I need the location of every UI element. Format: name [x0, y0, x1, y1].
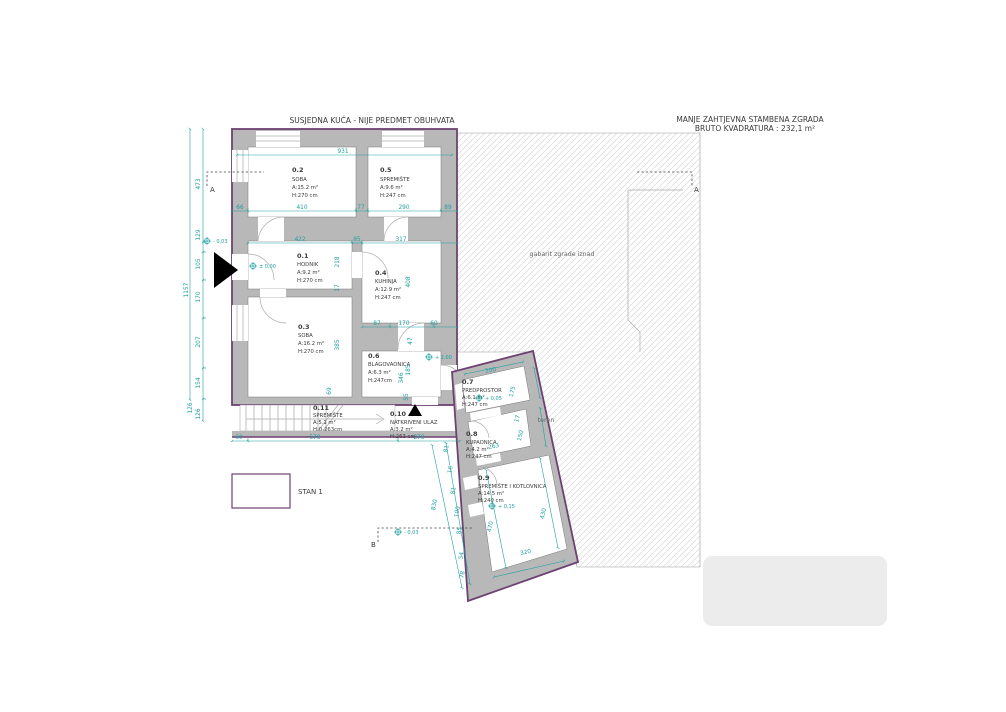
svg-text:SPREMIŠTE I KOTLOVNICA: SPREMIŠTE I KOTLOVNICA — [478, 483, 547, 490]
svg-text:317: 317 — [395, 237, 406, 243]
svg-text:A:9.6 m²: A:9.6 m² — [380, 184, 403, 191]
svg-text:KUHINJA: KUHINJA — [375, 279, 397, 285]
svg-text:290: 290 — [398, 205, 409, 211]
svg-text:408: 408 — [406, 276, 412, 287]
svg-text:H:247cm: H:247cm — [368, 378, 392, 384]
section-a-right-label: A — [694, 186, 699, 194]
svg-text:105: 105 — [196, 258, 202, 269]
svg-text:A:9.2 m²: A:9.2 m² — [297, 269, 320, 276]
svg-text:0.5: 0.5 — [380, 166, 392, 174]
dim-931: 931 — [337, 149, 348, 155]
svg-text:0.4: 0.4 — [375, 269, 387, 277]
room-04-interior — [362, 241, 441, 323]
svg-text:346: 346 — [399, 372, 405, 383]
svg-text:H:247 cm: H:247 cm — [380, 193, 406, 199]
svg-text:A:4.2 m²: A:4.2 m² — [466, 446, 489, 453]
svg-text:185: 185 — [406, 364, 412, 375]
svg-text:0.7: 0.7 — [462, 378, 474, 386]
svg-text:1157: 1157 — [184, 282, 190, 297]
svg-text:0.1: 0.1 — [297, 252, 309, 260]
svg-text:+ 0,15: + 0,15 — [498, 504, 515, 510]
svg-text:81: 81 — [450, 486, 457, 495]
section-b-label: B — [371, 541, 376, 549]
svg-text:60: 60 — [235, 435, 243, 441]
svg-text:85: 85 — [353, 237, 361, 243]
right-note-line1: MANJE ZAHTJEVNA STAMBENA ZGRADA — [676, 115, 824, 124]
svg-text:A:6.3 m²: A:6.3 m² — [368, 369, 391, 376]
svg-text:17: 17 — [335, 284, 341, 292]
svg-text:126: 126 — [196, 408, 202, 419]
svg-text:129: 129 — [196, 229, 202, 240]
top-note: SUSJEDNA KUĆA - NIJE PREDMET OBUHVATA — [290, 116, 456, 125]
svg-text:0.6: 0.6 — [368, 352, 380, 360]
svg-text:66: 66 — [236, 205, 244, 211]
right-note-line2: BRUTO KVADRATURA : 232,1 m² — [695, 124, 815, 133]
svg-text:89: 89 — [444, 205, 452, 211]
svg-text:H:270 cm: H:270 cm — [297, 278, 323, 284]
svg-text:± 0,00: ± 0,00 — [259, 264, 276, 270]
svg-text:0.3: 0.3 — [298, 323, 310, 331]
level-marker-icon — [394, 528, 402, 536]
svg-text:SOBA: SOBA — [298, 333, 313, 339]
svg-text:H:0-263cm: H:0-263cm — [313, 427, 342, 433]
floor-plan-drawing: A A B SUSJEDNA KUĆA - NIJE PREDMET OBUHV… — [0, 0, 1006, 712]
svg-text:126: 126 — [188, 402, 194, 413]
section-a-left-label: A — [210, 186, 215, 194]
svg-text:SOBA: SOBA — [292, 177, 307, 183]
svg-text:77: 77 — [357, 205, 365, 211]
redacted-stamp-area — [703, 556, 887, 626]
svg-text:170: 170 — [398, 321, 409, 327]
svg-text:A:12.9 m²: A:12.9 m² — [375, 286, 401, 293]
floor-plan-page: A A B SUSJEDNA KUĆA - NIJE PREDMET OBUHV… — [0, 0, 1006, 712]
svg-text:A:15.2 m²: A:15.2 m² — [292, 184, 318, 191]
gabarit-label: gabarit zgrade iznad — [529, 251, 594, 258]
svg-text:0.2: 0.2 — [292, 166, 304, 174]
svg-text:170: 170 — [196, 291, 202, 302]
svg-text:410: 410 — [296, 205, 307, 211]
svg-text:578: 578 — [309, 435, 320, 441]
legend-swatch — [232, 474, 290, 508]
svg-text:0.10: 0.10 — [390, 410, 407, 418]
svg-text:47: 47 — [408, 337, 414, 345]
svg-text:55: 55 — [404, 393, 410, 401]
svg-text:- 0,03: - 0,03 — [404, 530, 419, 536]
svg-text:NATKRIVENI ULAZ: NATKRIVENI ULAZ — [390, 420, 438, 426]
svg-text:0.11: 0.11 — [313, 404, 330, 412]
svg-text:SPREMIŠTE: SPREMIŠTE — [380, 176, 410, 183]
svg-text:100: 100 — [454, 506, 462, 518]
svg-text:422: 422 — [294, 237, 305, 243]
svg-text:A:16.2 m²: A:16.2 m² — [298, 340, 324, 347]
svg-text:385: 385 — [335, 339, 341, 350]
svg-text:A:3.2 m²: A:3.2 m² — [390, 426, 413, 433]
svg-text:+ 2,00: + 2,00 — [435, 355, 452, 361]
level-marker-icon — [203, 237, 211, 245]
svg-text:154: 154 — [196, 377, 202, 388]
svg-text:H:270 cm: H:270 cm — [292, 193, 318, 199]
svg-text:H:247 cm: H:247 cm — [466, 454, 492, 460]
svg-text:81: 81 — [443, 444, 450, 453]
svg-text:0.8: 0.8 — [466, 430, 478, 438]
svg-text:16: 16 — [447, 465, 454, 474]
legend-label: STAN 1 — [298, 488, 323, 496]
svg-text:PREDPROSTOR: PREDPROSTOR — [462, 388, 502, 394]
svg-text:69: 69 — [327, 387, 333, 395]
svg-text:H:247 cm: H:247 cm — [462, 402, 488, 408]
svg-text:278: 278 — [413, 435, 424, 441]
svg-text:H:263 cm: H:263 cm — [390, 434, 416, 440]
svg-text:BLAGOVAONICA: BLAGOVAONICA — [368, 362, 411, 368]
svg-text:- 0,03: - 0,03 — [213, 239, 228, 245]
svg-text:+ 0,05: + 0,05 — [485, 396, 502, 402]
svg-text:830: 830 — [431, 499, 439, 511]
svg-text:HODNIK: HODNIK — [297, 262, 319, 268]
svg-text:H:270 cm: H:270 cm — [298, 349, 324, 355]
svg-text:473: 473 — [196, 178, 202, 189]
legend: STAN 1 — [232, 474, 323, 508]
svg-text:A:5.1 m²: A:5.1 m² — [313, 419, 336, 426]
svg-text:60: 60 — [430, 321, 438, 327]
svg-text:SPREMIŠTE: SPREMIŠTE — [313, 412, 343, 419]
svg-text:87: 87 — [373, 321, 381, 327]
svg-text:218: 218 — [335, 256, 341, 267]
svg-text:H:247 cm: H:247 cm — [375, 295, 401, 301]
teren-label: teren — [538, 417, 555, 424]
svg-text:207: 207 — [196, 336, 202, 347]
